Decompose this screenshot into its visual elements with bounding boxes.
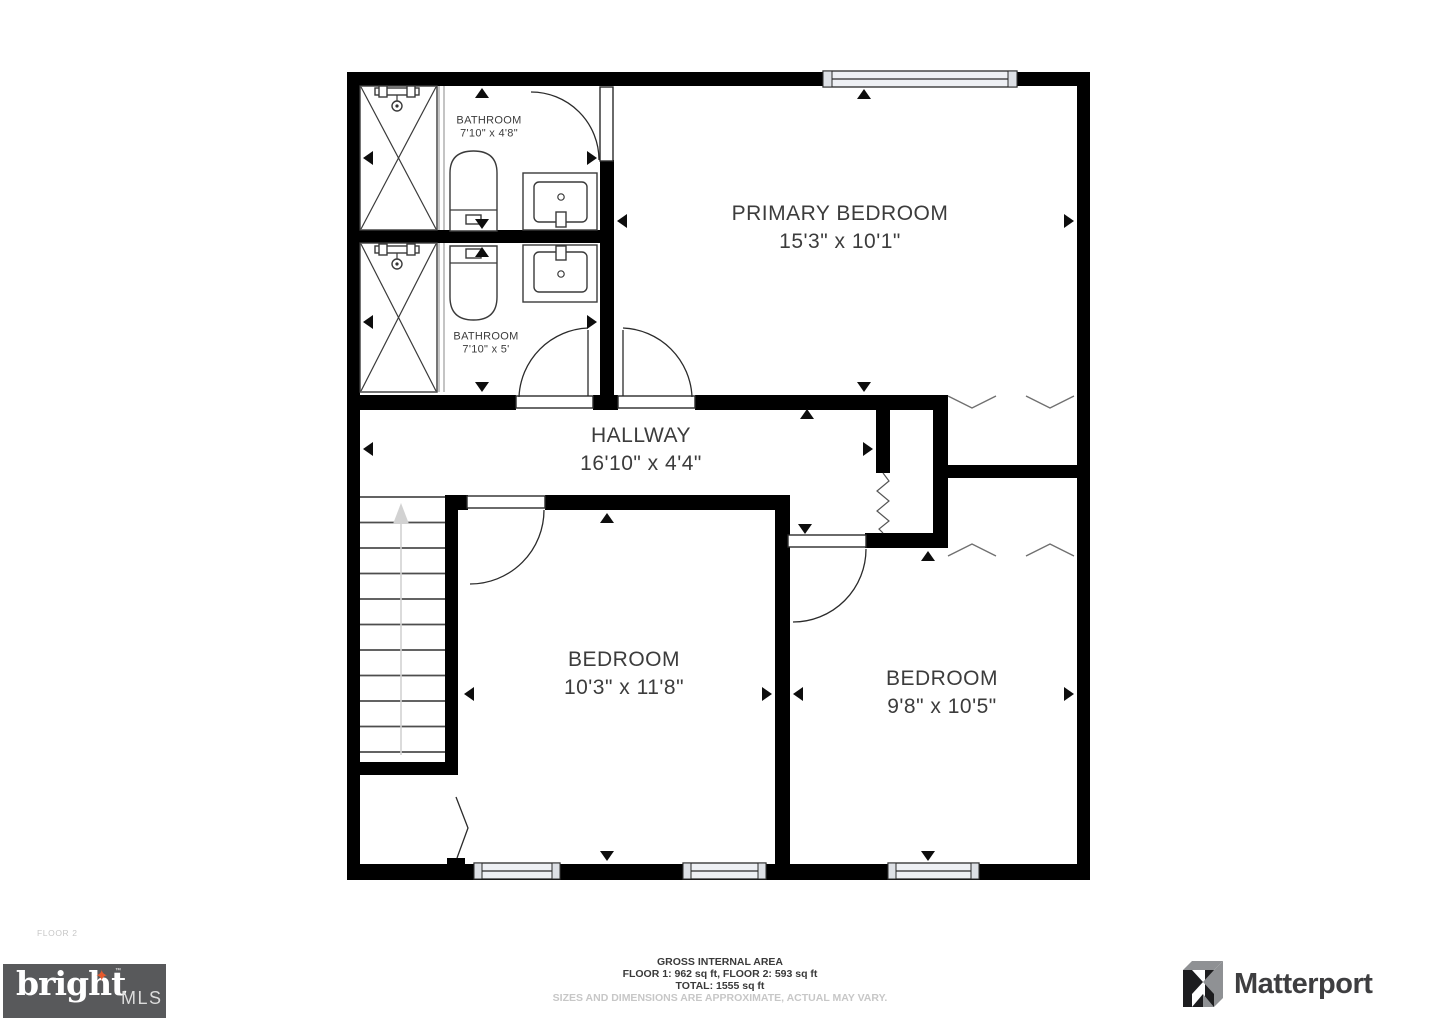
room-dimensions: 10'3" x 11'8" — [564, 674, 684, 702]
bathroom-primary-wall — [600, 160, 614, 410]
room-name: BEDROOM — [564, 646, 684, 674]
stairs-up-arrow-icon — [393, 503, 409, 524]
mls-logo-text: MLS — [121, 988, 163, 1009]
bathroom-divider-wall — [360, 230, 614, 243]
room-dimensions: 7'10" x 5' — [453, 343, 518, 356]
hallway-stub-wall — [876, 395, 890, 473]
room-label-bathroom-1: BATHROOM 7'10" x 4'8" — [456, 115, 521, 140]
matterport-logo-text: Matterport — [1234, 968, 1372, 1001]
bathroom-2-door-swing — [519, 328, 588, 397]
bathroom-2-fixtures — [360, 243, 597, 392]
window-bottom-1 — [474, 863, 560, 879]
ensuite-door-opening — [600, 87, 613, 161]
alcove-door — [456, 797, 468, 858]
bedroom-1-door-opening — [467, 496, 545, 508]
room-name: BATHROOM — [456, 115, 521, 128]
closet-wall — [933, 395, 948, 545]
wall-break-squiggle — [877, 473, 889, 533]
floor-areas: FLOOR 1: 962 sq ft, FLOOR 2: 593 sq ft — [553, 968, 888, 980]
four-point-star-icon: ✦ — [95, 966, 108, 986]
room-label-primary-bedroom: PRIMARY BEDROOM 15'3" x 10'1" — [732, 200, 949, 256]
closet-divider-wall — [948, 465, 1090, 478]
disclaimer: SIZES AND DIMENSIONS ARE APPROXIMATE, AC… — [553, 992, 888, 1004]
room-label-hallway: HALLWAY 16'10" x 4'4" — [580, 422, 702, 478]
primary-bedroom-door-opening — [618, 396, 695, 408]
room-dimensions: 9'8" x 10'5" — [886, 693, 998, 721]
bathtub — [450, 151, 497, 231]
room-name: BATHROOM — [453, 331, 518, 344]
room-name: PRIMARY BEDROOM — [732, 200, 949, 228]
total-area: TOTAL: 1555 sq ft — [553, 980, 888, 992]
trademark-symbol: ™ — [115, 968, 121, 974]
bedroom-1-door-swing — [470, 510, 544, 584]
room-dimensions: 16'10" x 4'4" — [580, 450, 702, 478]
matterport-m-icon — [1183, 961, 1223, 1007]
bathtub — [450, 246, 497, 320]
room-dimensions: 15'3" x 10'1" — [732, 228, 949, 256]
window-bottom-2 — [683, 863, 766, 879]
floorplan-drawing — [0, 0, 1440, 1018]
window-top — [823, 71, 1017, 87]
bedroom-2-door-swing — [793, 549, 866, 622]
room-dimensions: 7'10" x 4'8" — [456, 127, 521, 140]
matterport-logo: Matterport — [1183, 961, 1372, 1007]
area-summary: GROSS INTERNAL AREA FLOOR 1: 962 sq ft, … — [553, 956, 888, 1004]
bedroom-divider-wall — [775, 495, 790, 880]
room-label-bedroom-1: BEDROOM 10'3" x 11'8" — [564, 646, 684, 702]
bathroom-1-fixtures — [360, 86, 597, 231]
bright-logo-text: bright — [16, 964, 125, 1003]
stairs — [360, 497, 445, 755]
sink-vanity — [523, 245, 597, 302]
primary-bedroom-door-swing — [623, 328, 692, 397]
room-label-bedroom-2: BEDROOM 9'8" x 10'5" — [886, 665, 998, 721]
floorplan-page: BATHROOM 7'10" x 4'8" BATHROOM 7'10" x 5… — [0, 0, 1440, 1018]
bathroom-2-door-opening — [516, 396, 593, 408]
bedroom-2-door-opening — [788, 535, 866, 547]
window-bottom-3 — [888, 863, 979, 879]
ensuite-door-swing — [531, 92, 599, 160]
room-name: BEDROOM — [886, 665, 998, 693]
bright-mls-logo: bright ✦ ™ MLS — [3, 964, 166, 1018]
stairs-bottom-wall — [347, 762, 458, 775]
gross-area-title: GROSS INTERNAL AREA — [553, 956, 888, 968]
room-name: HALLWAY — [580, 422, 702, 450]
stairwell-wall — [445, 495, 458, 775]
sink-vanity — [523, 173, 597, 230]
floor-label: FLOOR 2 — [37, 928, 78, 938]
room-label-bathroom-2: BATHROOM 7'10" x 5' — [453, 331, 518, 356]
